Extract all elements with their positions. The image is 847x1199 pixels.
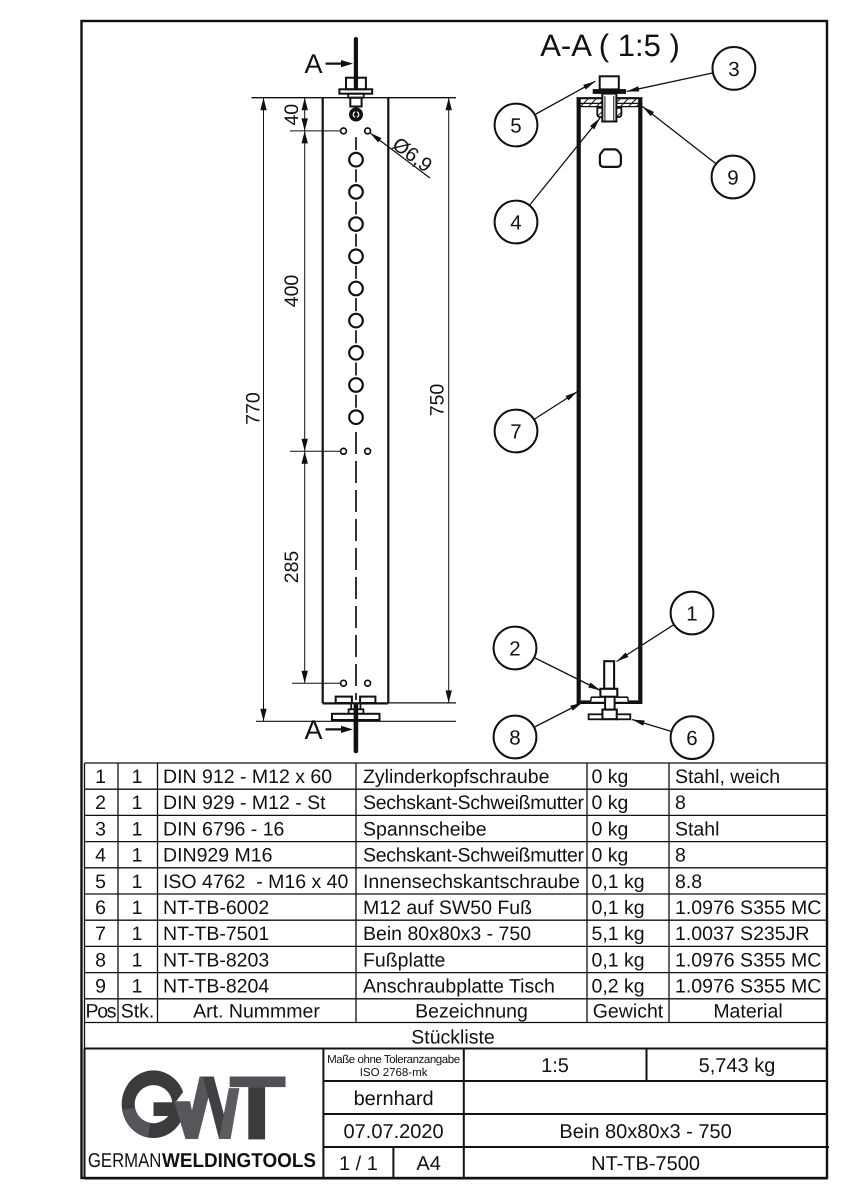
svg-text:Stückliste: Stückliste [411, 1027, 494, 1049]
svg-text:Stahl: Stahl [675, 818, 719, 840]
svg-text:07.07.2020: 07.07.2020 [344, 1121, 444, 1143]
svg-text:6: 6 [95, 897, 106, 919]
svg-text:4: 4 [95, 845, 106, 867]
svg-text:Innensechskantschraube: Innensechskantschraube [363, 871, 580, 893]
svg-text:285: 285 [281, 551, 303, 584]
svg-text:5,1 kg: 5,1 kg [592, 923, 645, 945]
svg-text:1.0037 S235JR: 1.0037 S235JR [675, 923, 809, 945]
svg-text:8: 8 [675, 845, 686, 867]
svg-text:3: 3 [728, 58, 739, 81]
svg-text:7: 7 [510, 421, 521, 444]
svg-text:0,1 kg: 0,1 kg [592, 871, 645, 893]
svg-text:1.0976 S355 MC: 1.0976 S355 MC [675, 949, 821, 971]
svg-text:DIN 929 - M12 - St: DIN 929 - M12 - St [163, 792, 326, 814]
svg-text:5: 5 [95, 871, 106, 893]
svg-text:GERMAN: GERMAN [88, 1150, 161, 1172]
svg-text:A4: A4 [416, 1153, 440, 1175]
svg-text:ISO 4762 - M16 x 40: ISO 4762 - M16 x 40 [163, 871, 349, 893]
svg-text:770: 770 [243, 392, 265, 425]
svg-text:DIN 912 - M12 x 60: DIN 912 - M12 x 60 [163, 766, 332, 788]
svg-text:NT-TB-8204: NT-TB-8204 [163, 976, 269, 998]
svg-text:NT-TB-8203: NT-TB-8203 [163, 949, 269, 971]
svg-text:2: 2 [95, 792, 106, 814]
svg-text:40: 40 [281, 104, 303, 126]
svg-text:DIN929 M16: DIN929 M16 [163, 845, 272, 867]
svg-text:1: 1 [132, 976, 143, 998]
svg-text:NT-TB-7501: NT-TB-7501 [163, 923, 269, 945]
svg-text:Stk.: Stk. [121, 1001, 155, 1023]
svg-text:Zylinderkopfschraube: Zylinderkopfschraube [363, 766, 549, 788]
svg-text:0,1 kg: 0,1 kg [592, 897, 645, 919]
svg-text:A-A ( 1:5 ): A-A ( 1:5 ) [540, 28, 680, 63]
svg-text:1: 1 [95, 766, 106, 788]
svg-text:1: 1 [132, 766, 143, 788]
svg-text:1.0976 S355 MC: 1.0976 S355 MC [675, 897, 821, 919]
svg-text:0,1 kg: 0,1 kg [592, 949, 645, 971]
svg-text:1: 1 [132, 845, 143, 867]
svg-text:0 kg: 0 kg [592, 818, 629, 840]
svg-text:1: 1 [132, 792, 143, 814]
svg-text:1.0976 S355 MC: 1.0976 S355 MC [675, 976, 821, 998]
svg-text:bernhard: bernhard [354, 1088, 434, 1110]
svg-text:Bezeichnung: Bezeichnung [415, 1001, 528, 1023]
svg-text:1 / 1: 1 / 1 [339, 1153, 378, 1175]
svg-text:1: 1 [132, 923, 143, 945]
svg-text:0 kg: 0 kg [592, 766, 629, 788]
svg-text:5: 5 [510, 115, 521, 138]
svg-text:9: 9 [727, 167, 738, 190]
svg-text:Sechskant-Schweißmutter: Sechskant-Schweißmutter [363, 845, 585, 867]
svg-text:NT-TB-6002: NT-TB-6002 [163, 897, 269, 919]
svg-text:750: 750 [427, 384, 449, 417]
svg-text:8.8: 8.8 [675, 871, 702, 893]
svg-text:5,743 kg: 5,743 kg [699, 1055, 776, 1077]
svg-text:A: A [305, 715, 323, 745]
svg-text:400: 400 [281, 275, 303, 308]
svg-text:1: 1 [686, 603, 697, 626]
svg-text:0 kg: 0 kg [592, 845, 629, 867]
svg-text:1: 1 [132, 818, 143, 840]
svg-text:Anschraubplatte Tisch: Anschraubplatte Tisch [363, 976, 555, 998]
svg-text:6: 6 [686, 727, 697, 750]
svg-text:1: 1 [132, 871, 143, 893]
svg-text:A: A [305, 49, 323, 79]
svg-text:1: 1 [132, 949, 143, 971]
svg-text:WELDINGTOOLS: WELDINGTOOLS [162, 1150, 316, 1172]
svg-text:Fußplatte: Fußplatte [363, 949, 445, 971]
svg-text:Stahl, weich: Stahl, weich [675, 766, 780, 788]
svg-text:DIN 6796 - 16: DIN 6796 - 16 [163, 818, 284, 840]
svg-text:1:5: 1:5 [541, 1055, 569, 1077]
svg-text:1: 1 [132, 897, 143, 919]
svg-text:ISO 2768-mk: ISO 2768-mk [360, 1067, 428, 1079]
svg-text:Art. Nummmer: Art. Nummmer [193, 1001, 320, 1023]
svg-text:0,2 kg: 0,2 kg [592, 976, 645, 998]
svg-text:8: 8 [675, 792, 686, 814]
svg-text:M12 auf SW50 Fuß: M12 auf SW50 Fuß [363, 897, 532, 919]
svg-text:3: 3 [95, 818, 106, 840]
svg-text:Maße ohne Toleranzangabe: Maße ohne Toleranzangabe [327, 1054, 460, 1066]
svg-text:Bein 80x80x3 - 750: Bein 80x80x3 - 750 [363, 923, 531, 945]
svg-text:Pos: Pos [86, 1001, 117, 1023]
svg-text:8: 8 [95, 949, 106, 971]
svg-text:7: 7 [95, 923, 106, 945]
svg-text:2: 2 [509, 638, 520, 661]
svg-text:4: 4 [510, 212, 521, 235]
svg-text:NT-TB-7500: NT-TB-7500 [591, 1153, 700, 1175]
svg-text:8: 8 [509, 727, 520, 750]
svg-text:Material: Material [713, 1001, 782, 1023]
svg-text:Spannscheibe: Spannscheibe [363, 818, 487, 840]
svg-text:Gewicht: Gewicht [593, 1001, 664, 1023]
svg-text:Sechskant-Schweißmutter: Sechskant-Schweißmutter [363, 792, 585, 814]
svg-text:Bein 80x80x3 - 750: Bein 80x80x3 - 750 [559, 1121, 731, 1143]
svg-text:9: 9 [95, 976, 106, 998]
svg-text:0 kg: 0 kg [592, 792, 629, 814]
